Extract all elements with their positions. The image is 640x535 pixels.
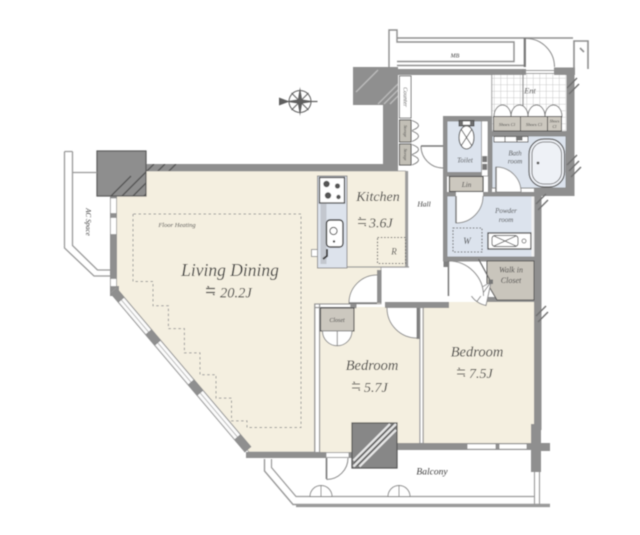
svg-text:Bedroom: Bedroom: [451, 345, 504, 361]
svg-text:Living Dining: Living Dining: [180, 260, 279, 280]
svg-text:Closet: Closet: [501, 276, 522, 285]
svg-text:Ent: Ent: [523, 86, 536, 96]
svg-text:room: room: [499, 216, 514, 224]
svg-text:Bath: Bath: [508, 150, 522, 158]
svg-text:7.5J: 7.5J: [469, 367, 494, 382]
svg-text:Walk in: Walk in: [499, 266, 523, 275]
svg-text:Kitchen: Kitchen: [355, 190, 400, 205]
svg-text:Floor Heating: Floor Heating: [157, 222, 196, 229]
svg-text:Hall: Hall: [416, 200, 430, 209]
svg-text:Shoes Cl: Shoes Cl: [526, 122, 543, 127]
svg-text:R: R: [390, 247, 397, 257]
svg-text:Powder: Powder: [494, 207, 517, 215]
svg-text:Balcony: Balcony: [416, 468, 448, 478]
svg-text:Lin: Lin: [461, 181, 472, 189]
svg-text:Shoes: Shoes: [550, 119, 560, 124]
svg-text:3.6J: 3.6J: [368, 217, 394, 232]
svg-text:Counter: Counter: [402, 87, 408, 107]
svg-text:Storage: Storage: [403, 149, 407, 161]
svg-text:Storage: Storage: [403, 125, 407, 137]
svg-text:5.7J: 5.7J: [364, 381, 389, 396]
svg-text:Bedroom: Bedroom: [346, 358, 399, 374]
svg-text:MB: MB: [450, 54, 460, 60]
svg-text:Toilet: Toilet: [457, 157, 474, 165]
svg-text:room: room: [508, 158, 523, 166]
svg-text:AC Space: AC Space: [84, 207, 92, 235]
svg-text:20.2J: 20.2J: [220, 286, 252, 302]
svg-text:Shoes Cl: Shoes Cl: [499, 122, 516, 127]
svg-text:Closet: Closet: [329, 318, 345, 324]
